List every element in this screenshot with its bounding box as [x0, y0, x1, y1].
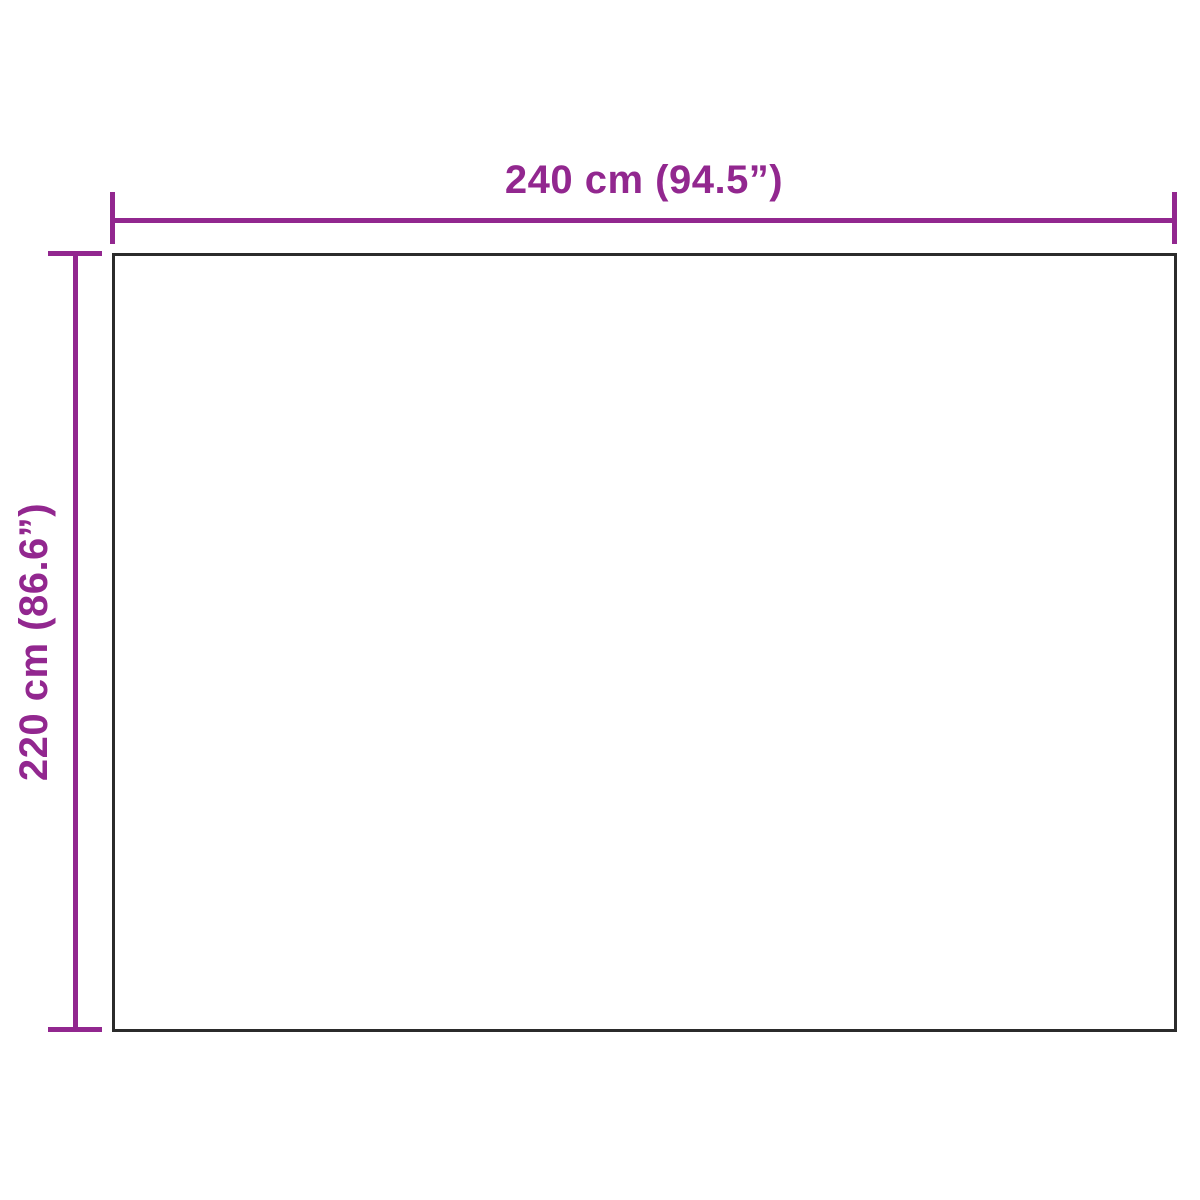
dimension-diagram: 240 cm (94.5”) 220 cm (86.6”) [0, 0, 1200, 1200]
product-outline-rectangle [112, 253, 1177, 1032]
height-dimension-line [73, 253, 78, 1032]
height-dimension-tick-top [48, 251, 102, 256]
width-dimension-line [112, 218, 1177, 223]
width-dimension-tick-right [1172, 192, 1177, 244]
height-dimension-tick-bottom [48, 1027, 102, 1032]
width-dimension-tick-left [110, 192, 115, 244]
height-dimension-label: 220 cm (86.6”) [10, 322, 58, 962]
width-dimension-label: 240 cm (94.5”) [324, 156, 964, 204]
